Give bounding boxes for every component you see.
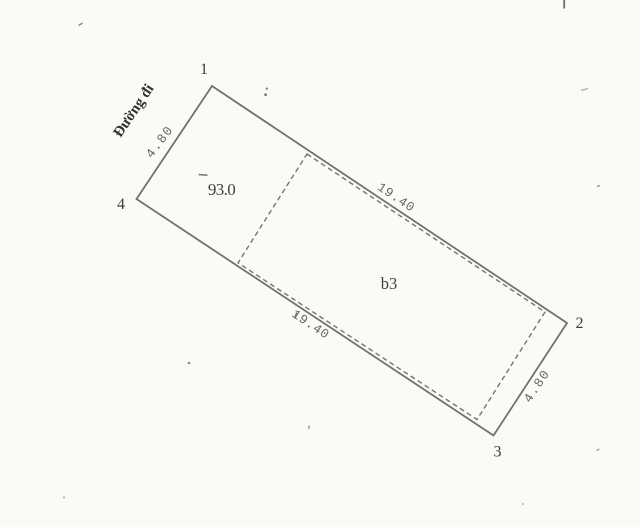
svg-text:b3: b3	[381, 274, 398, 293]
svg-text:2: 2	[576, 315, 584, 332]
svg-text:93.0: 93.0	[208, 180, 235, 199]
svg-text:4: 4	[117, 196, 125, 213]
svg-text:3: 3	[494, 444, 502, 461]
svg-text:1: 1	[200, 61, 208, 78]
